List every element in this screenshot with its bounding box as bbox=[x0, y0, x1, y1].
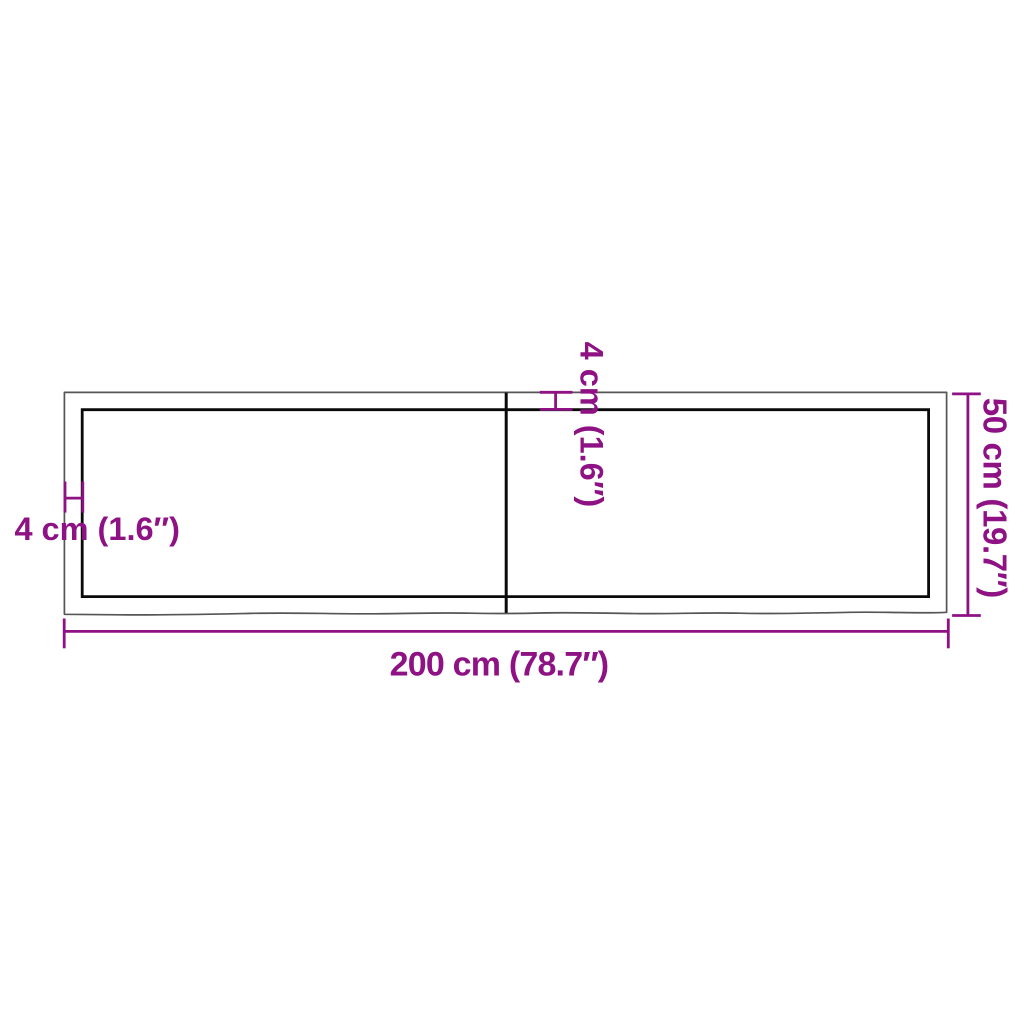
svg-text:4 cm (1.6″): 4 cm (1.6″) bbox=[14, 511, 180, 547]
svg-text:200 cm (78.7″): 200 cm (78.7″) bbox=[390, 646, 609, 684]
svg-text:50 cm (19.7″): 50 cm (19.7″) bbox=[977, 398, 1014, 598]
svg-text:4 cm (1.6″): 4 cm (1.6″) bbox=[573, 342, 609, 508]
